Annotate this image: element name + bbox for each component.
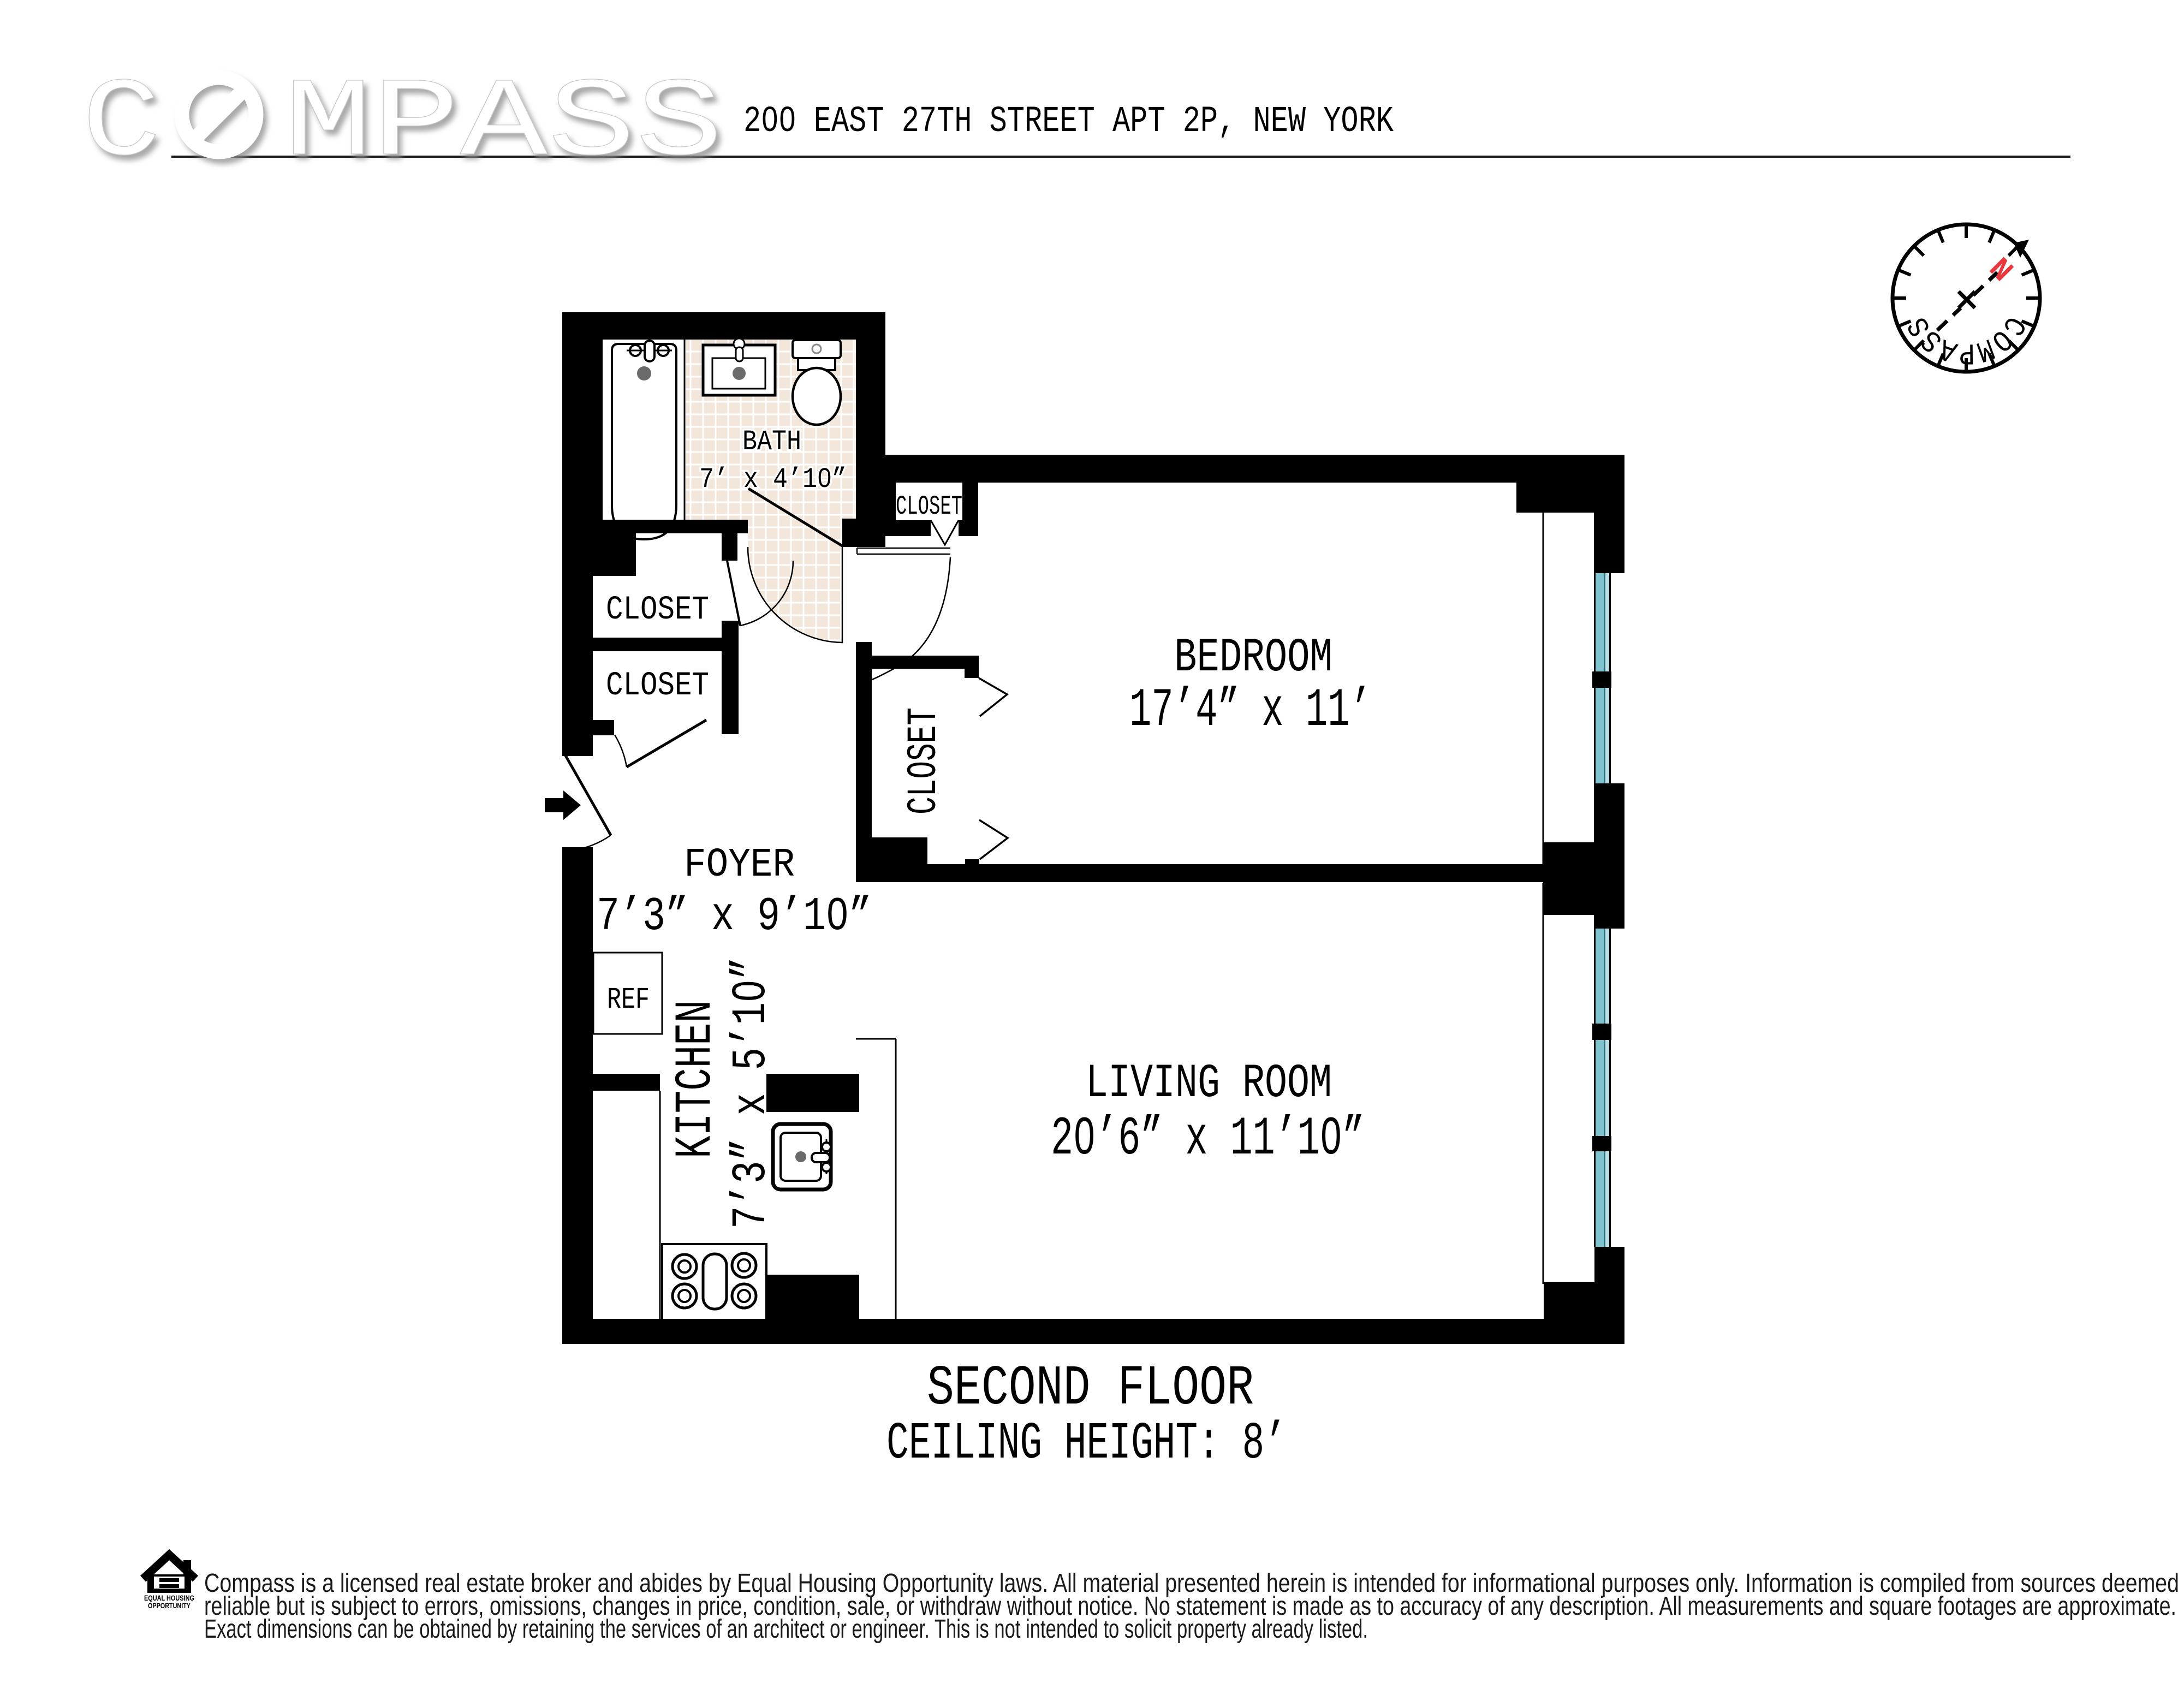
svg-text:CLOSET: CLOSET: [606, 591, 709, 629]
svg-text:Exact dimensions can be obtain: Exact dimensions can be obtained by reta…: [204, 1615, 1368, 1644]
svg-text:7’3” x 5’10”: 7’3” x 5’10”: [725, 957, 779, 1229]
svg-text:REF: REF: [607, 983, 650, 1017]
svg-text:MPASS: MPASS: [284, 61, 723, 188]
svg-text:BEDROOM: BEDROOM: [1174, 632, 1332, 685]
svg-text:7’3” x 9’10”: 7’3” x 9’10”: [597, 890, 872, 943]
svg-text:LIVING ROOM: LIVING ROOM: [1086, 1057, 1332, 1111]
svg-text:CLOSET: CLOSET: [901, 707, 948, 814]
svg-text:20’6” x 11’10”: 20’6” x 11’10”: [1051, 1109, 1365, 1170]
svg-text:C: C: [82, 61, 161, 188]
svg-text:200 EAST 27TH STREET APT 2P, N: 200 EAST 27TH STREET APT 2P, NEW YORK: [743, 101, 1394, 142]
svg-text:CEILING HEIGHT: 8’: CEILING HEIGHT: 8’: [886, 1414, 1287, 1473]
svg-text:7’ x 4’10”: 7’ x 4’10”: [699, 463, 847, 496]
svg-text:CLOSET: CLOSET: [896, 491, 962, 522]
svg-text:17’4” x 11’: 17’4” x 11’: [1129, 680, 1372, 741]
svg-text:FOYER: FOYER: [684, 842, 795, 888]
svg-text:CLOSET: CLOSET: [606, 667, 709, 705]
svg-text:SECOND FLOOR: SECOND FLOOR: [927, 1357, 1254, 1420]
svg-text:OPPORTUNITY: OPPORTUNITY: [148, 1601, 191, 1610]
svg-text:KITCHEN: KITCHEN: [666, 1000, 725, 1158]
svg-text:BATH: BATH: [742, 426, 801, 458]
